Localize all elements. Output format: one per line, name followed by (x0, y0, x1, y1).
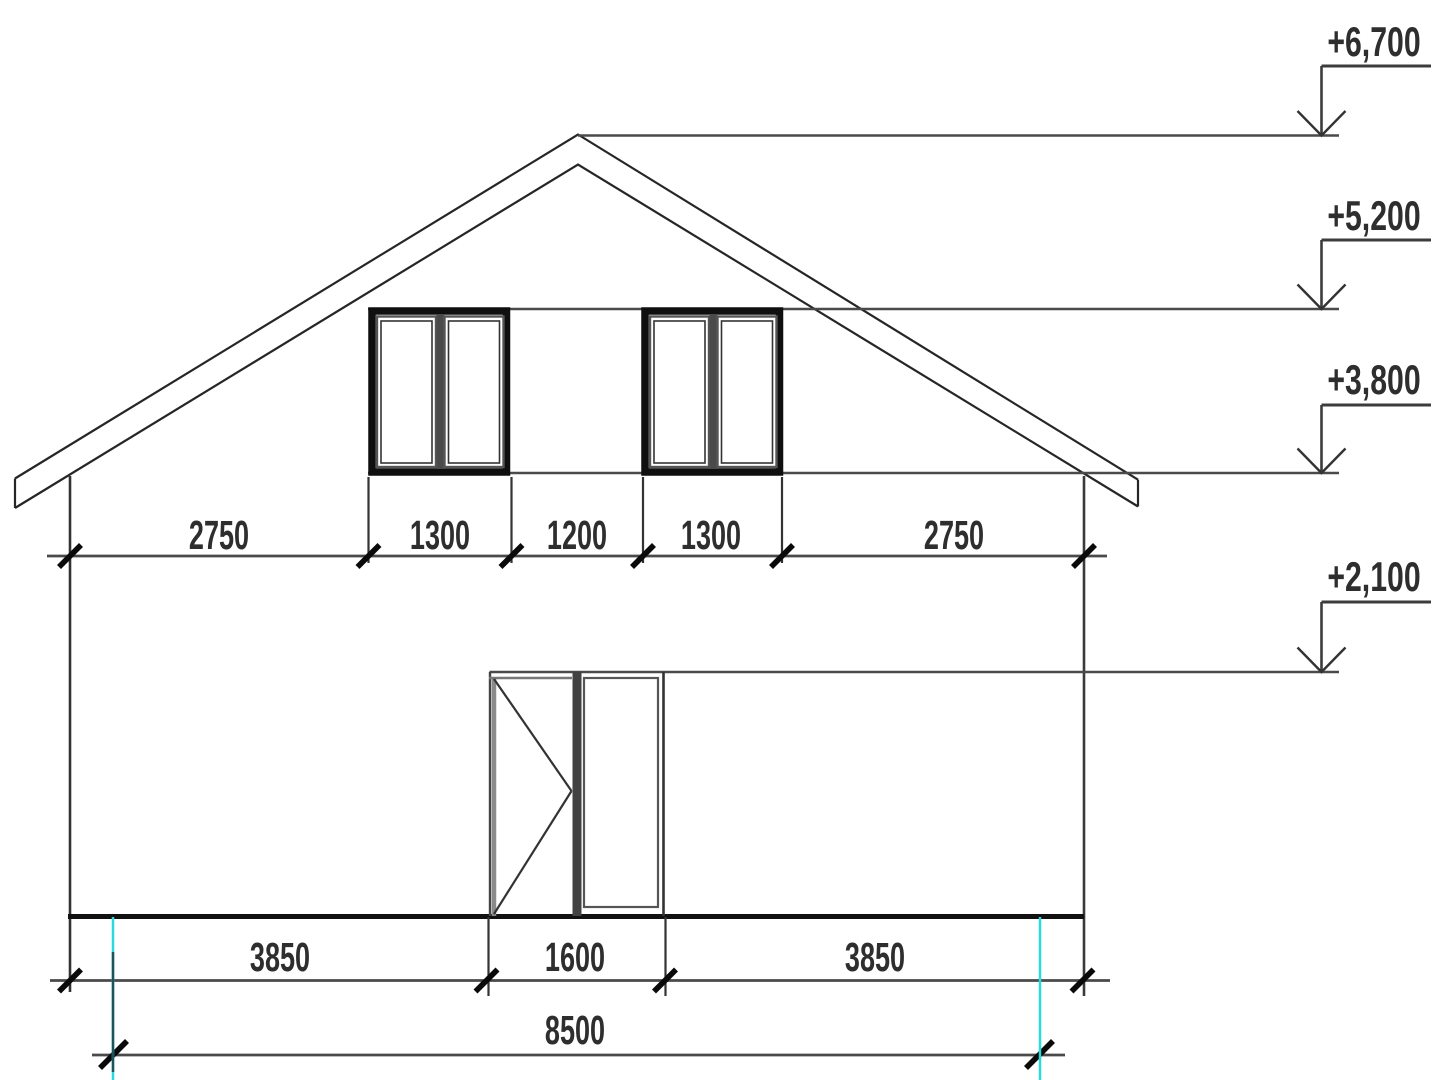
svg-text:1300: 1300 (410, 514, 470, 559)
svg-text:1300: 1300 (681, 514, 741, 559)
svg-text:3850: 3850 (250, 936, 310, 981)
svg-text:+6,700: +6,700 (1327, 18, 1420, 65)
svg-text:+2,100: +2,100 (1327, 553, 1420, 600)
svg-text:3850: 3850 (845, 936, 905, 981)
svg-text:8500: 8500 (545, 1009, 605, 1054)
svg-text:+5,200: +5,200 (1327, 192, 1420, 239)
svg-text:1200: 1200 (547, 514, 607, 559)
svg-text:2750: 2750 (189, 514, 249, 559)
svg-text:1600: 1600 (545, 936, 605, 981)
svg-text:+3,800: +3,800 (1327, 356, 1420, 403)
svg-text:2750: 2750 (924, 514, 984, 559)
